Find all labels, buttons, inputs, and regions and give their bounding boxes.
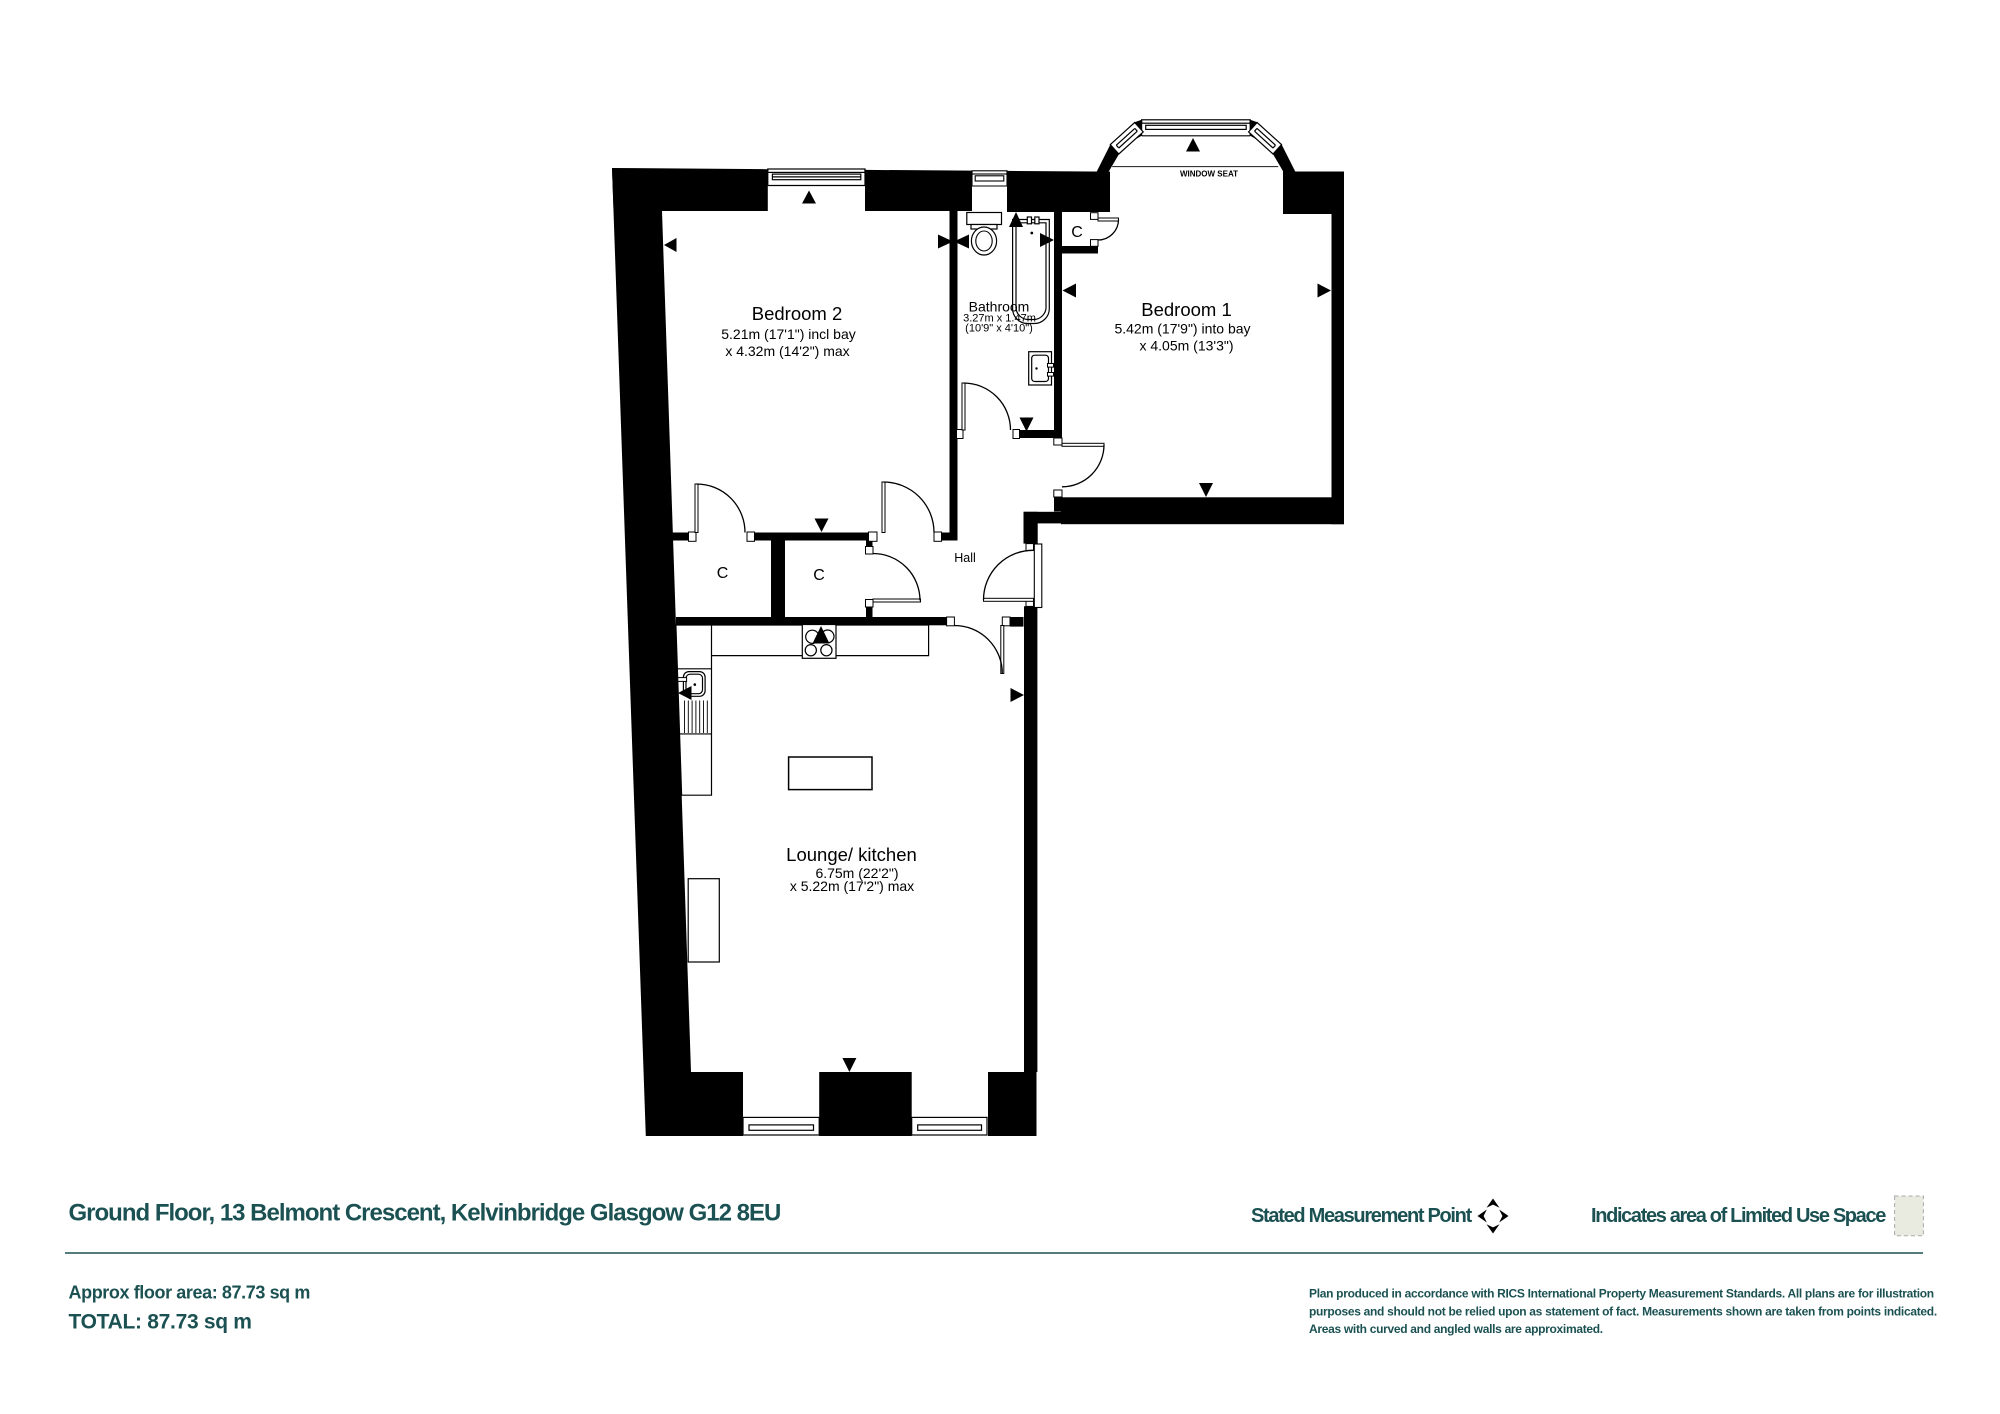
svg-text:C: C	[813, 567, 825, 584]
svg-text:TOTAL: 87.73 sq m: TOTAL: 87.73 sq m	[69, 1311, 252, 1334]
svg-text:Areas with curved and angled w: Areas with curved and angled walls are a…	[1309, 1322, 1603, 1336]
svg-text:x 4.32m (14'2") max: x 4.32m (14'2") max	[725, 343, 849, 359]
svg-text:Lounge/ kitchen: Lounge/ kitchen	[786, 844, 917, 865]
svg-text:Bedroom 1: Bedroom 1	[1141, 299, 1232, 320]
svg-text:5.42m (17'9") into bay: 5.42m (17'9") into bay	[1114, 321, 1250, 337]
svg-text:C: C	[717, 565, 729, 582]
svg-text:Indicates area of Limited Use: Indicates area of Limited Use Space	[1591, 1205, 1886, 1227]
svg-text:Stated Measurement Point: Stated Measurement Point	[1251, 1205, 1473, 1227]
svg-text:Hall: Hall	[954, 551, 976, 565]
svg-text:Plan produced in accordance w: Plan produced in accordance with RICS In…	[1309, 1287, 1934, 1301]
svg-text:x 4.05m (13'3"): x 4.05m (13'3")	[1139, 338, 1233, 354]
svg-text:Approx floor area: 87.73 sq m: Approx floor area: 87.73 sq m	[69, 1283, 310, 1303]
svg-text:Bedroom 2: Bedroom 2	[752, 303, 843, 324]
svg-text:(10'9" x 4'10"): (10'9" x 4'10")	[965, 323, 1033, 335]
svg-text:Ground Floor, 13 Belmont Cresc: Ground Floor, 13 Belmont Crescent, Kelvi…	[69, 1199, 781, 1226]
svg-text:5.21m (17'1") incl bay: 5.21m (17'1") incl bay	[721, 326, 855, 342]
svg-text:x 5.22m (17'2") max: x 5.22m (17'2") max	[790, 878, 914, 894]
svg-text:purposes and should not be rel: purposes and should not be relied upon a…	[1309, 1305, 1937, 1319]
svg-text:C: C	[1071, 224, 1083, 241]
svg-text:WINDOW SEAT: WINDOW SEAT	[1180, 170, 1238, 179]
